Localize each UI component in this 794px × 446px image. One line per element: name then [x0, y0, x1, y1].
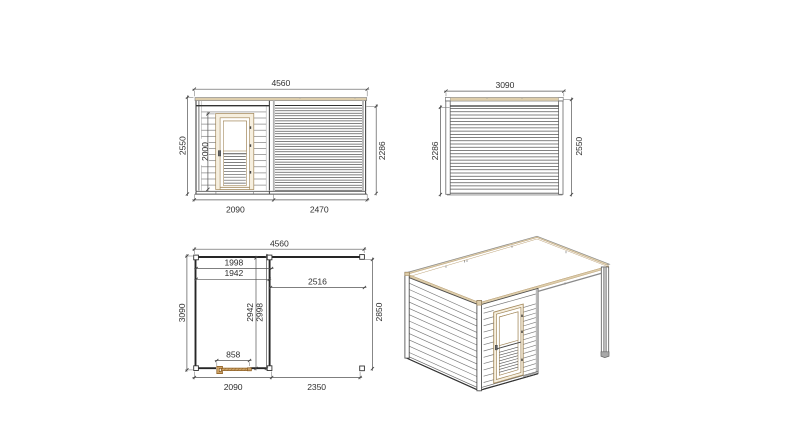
svg-text:2550: 2550: [574, 137, 584, 156]
svg-text:2090: 2090: [224, 382, 243, 392]
svg-text:2286: 2286: [430, 141, 440, 160]
svg-text:858: 858: [226, 350, 240, 360]
svg-text:1998: 1998: [224, 257, 243, 267]
svg-text:2286: 2286: [377, 141, 387, 160]
svg-text:2998: 2998: [255, 303, 265, 322]
svg-text:4560: 4560: [271, 78, 290, 88]
svg-text:3090: 3090: [496, 80, 515, 90]
svg-text:2000: 2000: [200, 142, 210, 161]
svg-text:1942: 1942: [224, 268, 243, 278]
svg-text:2090: 2090: [226, 205, 245, 215]
svg-text:2350: 2350: [307, 382, 326, 392]
svg-text:2470: 2470: [310, 205, 329, 215]
svg-text:2516: 2516: [308, 276, 327, 286]
svg-text:2550: 2550: [177, 136, 187, 155]
svg-text:3090: 3090: [177, 303, 187, 322]
svg-text:4560: 4560: [270, 238, 289, 248]
svg-text:2850: 2850: [374, 302, 384, 321]
